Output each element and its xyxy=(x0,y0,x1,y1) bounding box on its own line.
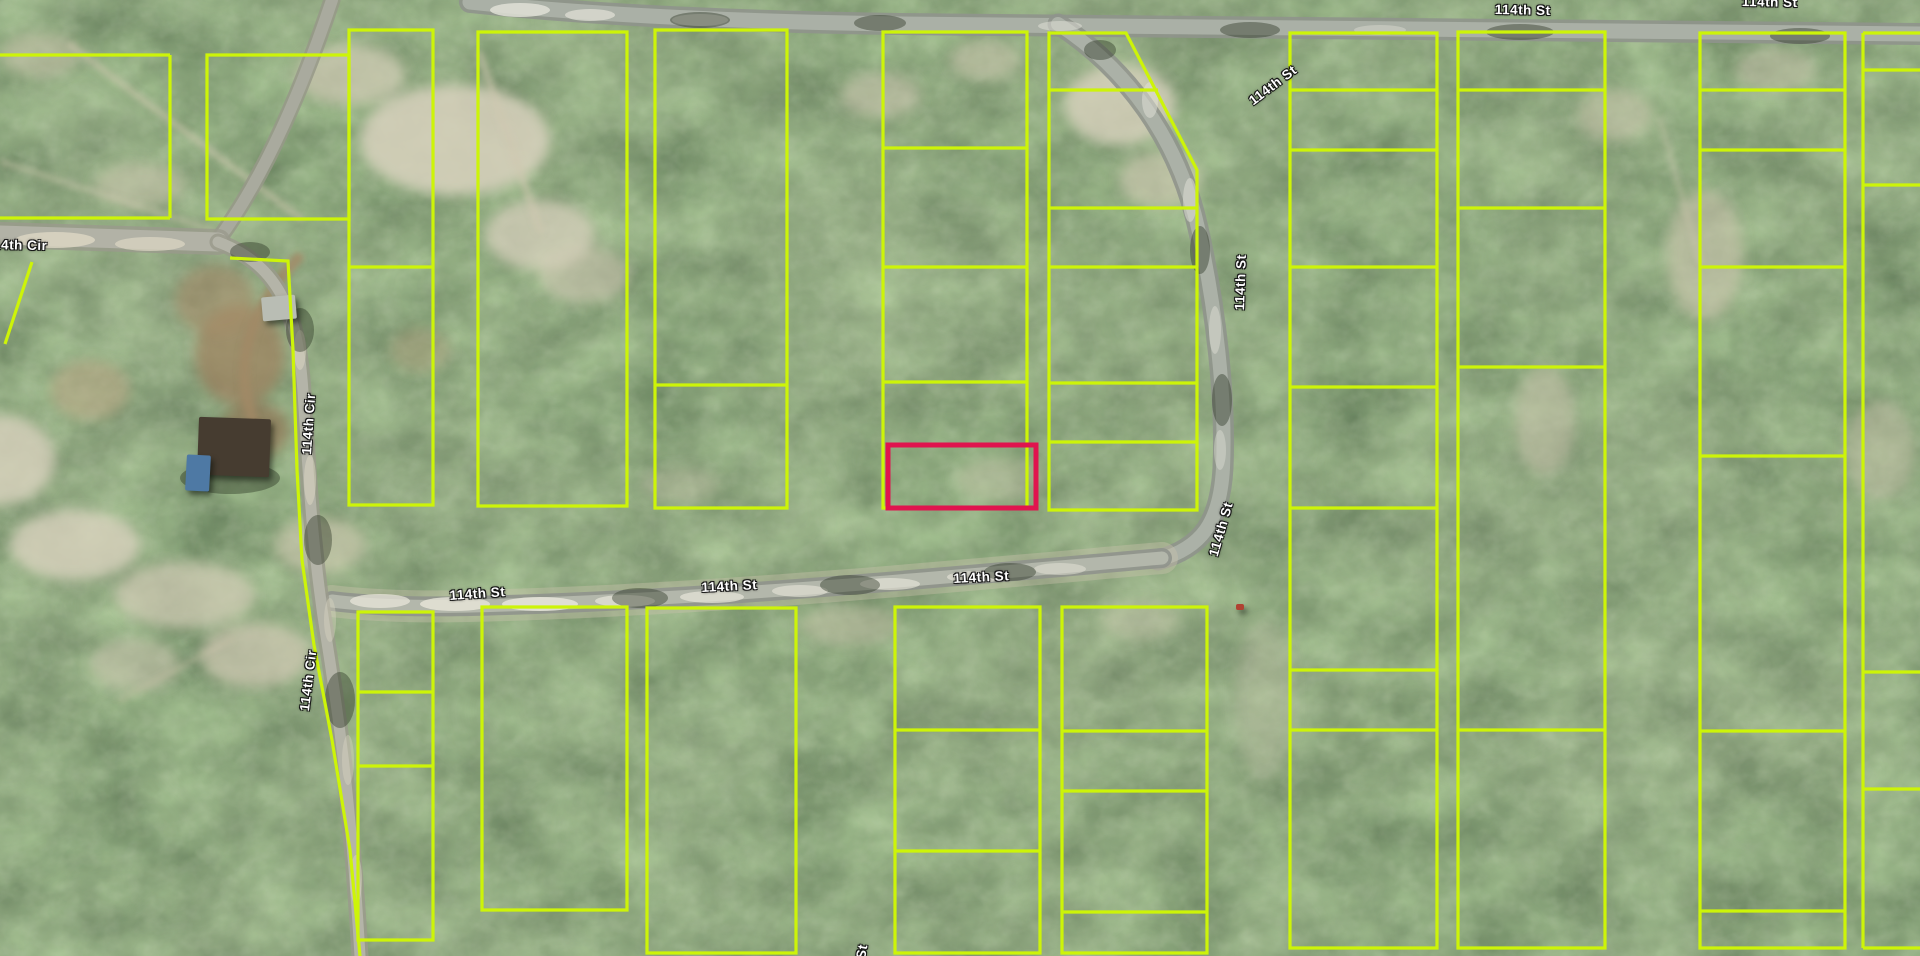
aerial-map[interactable]: 114th St114th St114th St114th St114th St… xyxy=(0,0,1920,956)
parcel-boundary xyxy=(1700,33,1845,948)
parcel-boundary xyxy=(1863,33,1920,948)
highlighted-parcel[interactable] xyxy=(888,445,1036,508)
parcel-boundary xyxy=(883,32,1027,508)
parcel-boundary xyxy=(647,608,796,953)
parcel-overlay xyxy=(0,0,1920,956)
parcel-boundary xyxy=(655,30,787,508)
street-label: 114th Cir xyxy=(0,237,48,253)
parcel-boundary xyxy=(895,607,1040,953)
street-label: 114th St xyxy=(1495,2,1551,18)
parcel-boundary xyxy=(0,55,170,218)
street-label: 114th St xyxy=(1742,0,1798,10)
parcel-boundary xyxy=(358,612,433,940)
parcel-boundary xyxy=(478,32,627,506)
parcel-boundary xyxy=(1049,33,1197,510)
parcel-boundary xyxy=(207,55,349,219)
street-label: 114th St xyxy=(701,577,757,595)
parcel-boundary xyxy=(1458,32,1605,948)
parcel-boundary xyxy=(1290,33,1437,948)
street-label: 114th St xyxy=(953,568,1009,586)
road-boundary-line xyxy=(5,262,32,344)
parcel-boundary xyxy=(482,607,627,910)
street-label: 114th St xyxy=(1232,254,1249,310)
parcel-boundary xyxy=(1062,607,1207,953)
road-boundary-line xyxy=(230,258,360,956)
